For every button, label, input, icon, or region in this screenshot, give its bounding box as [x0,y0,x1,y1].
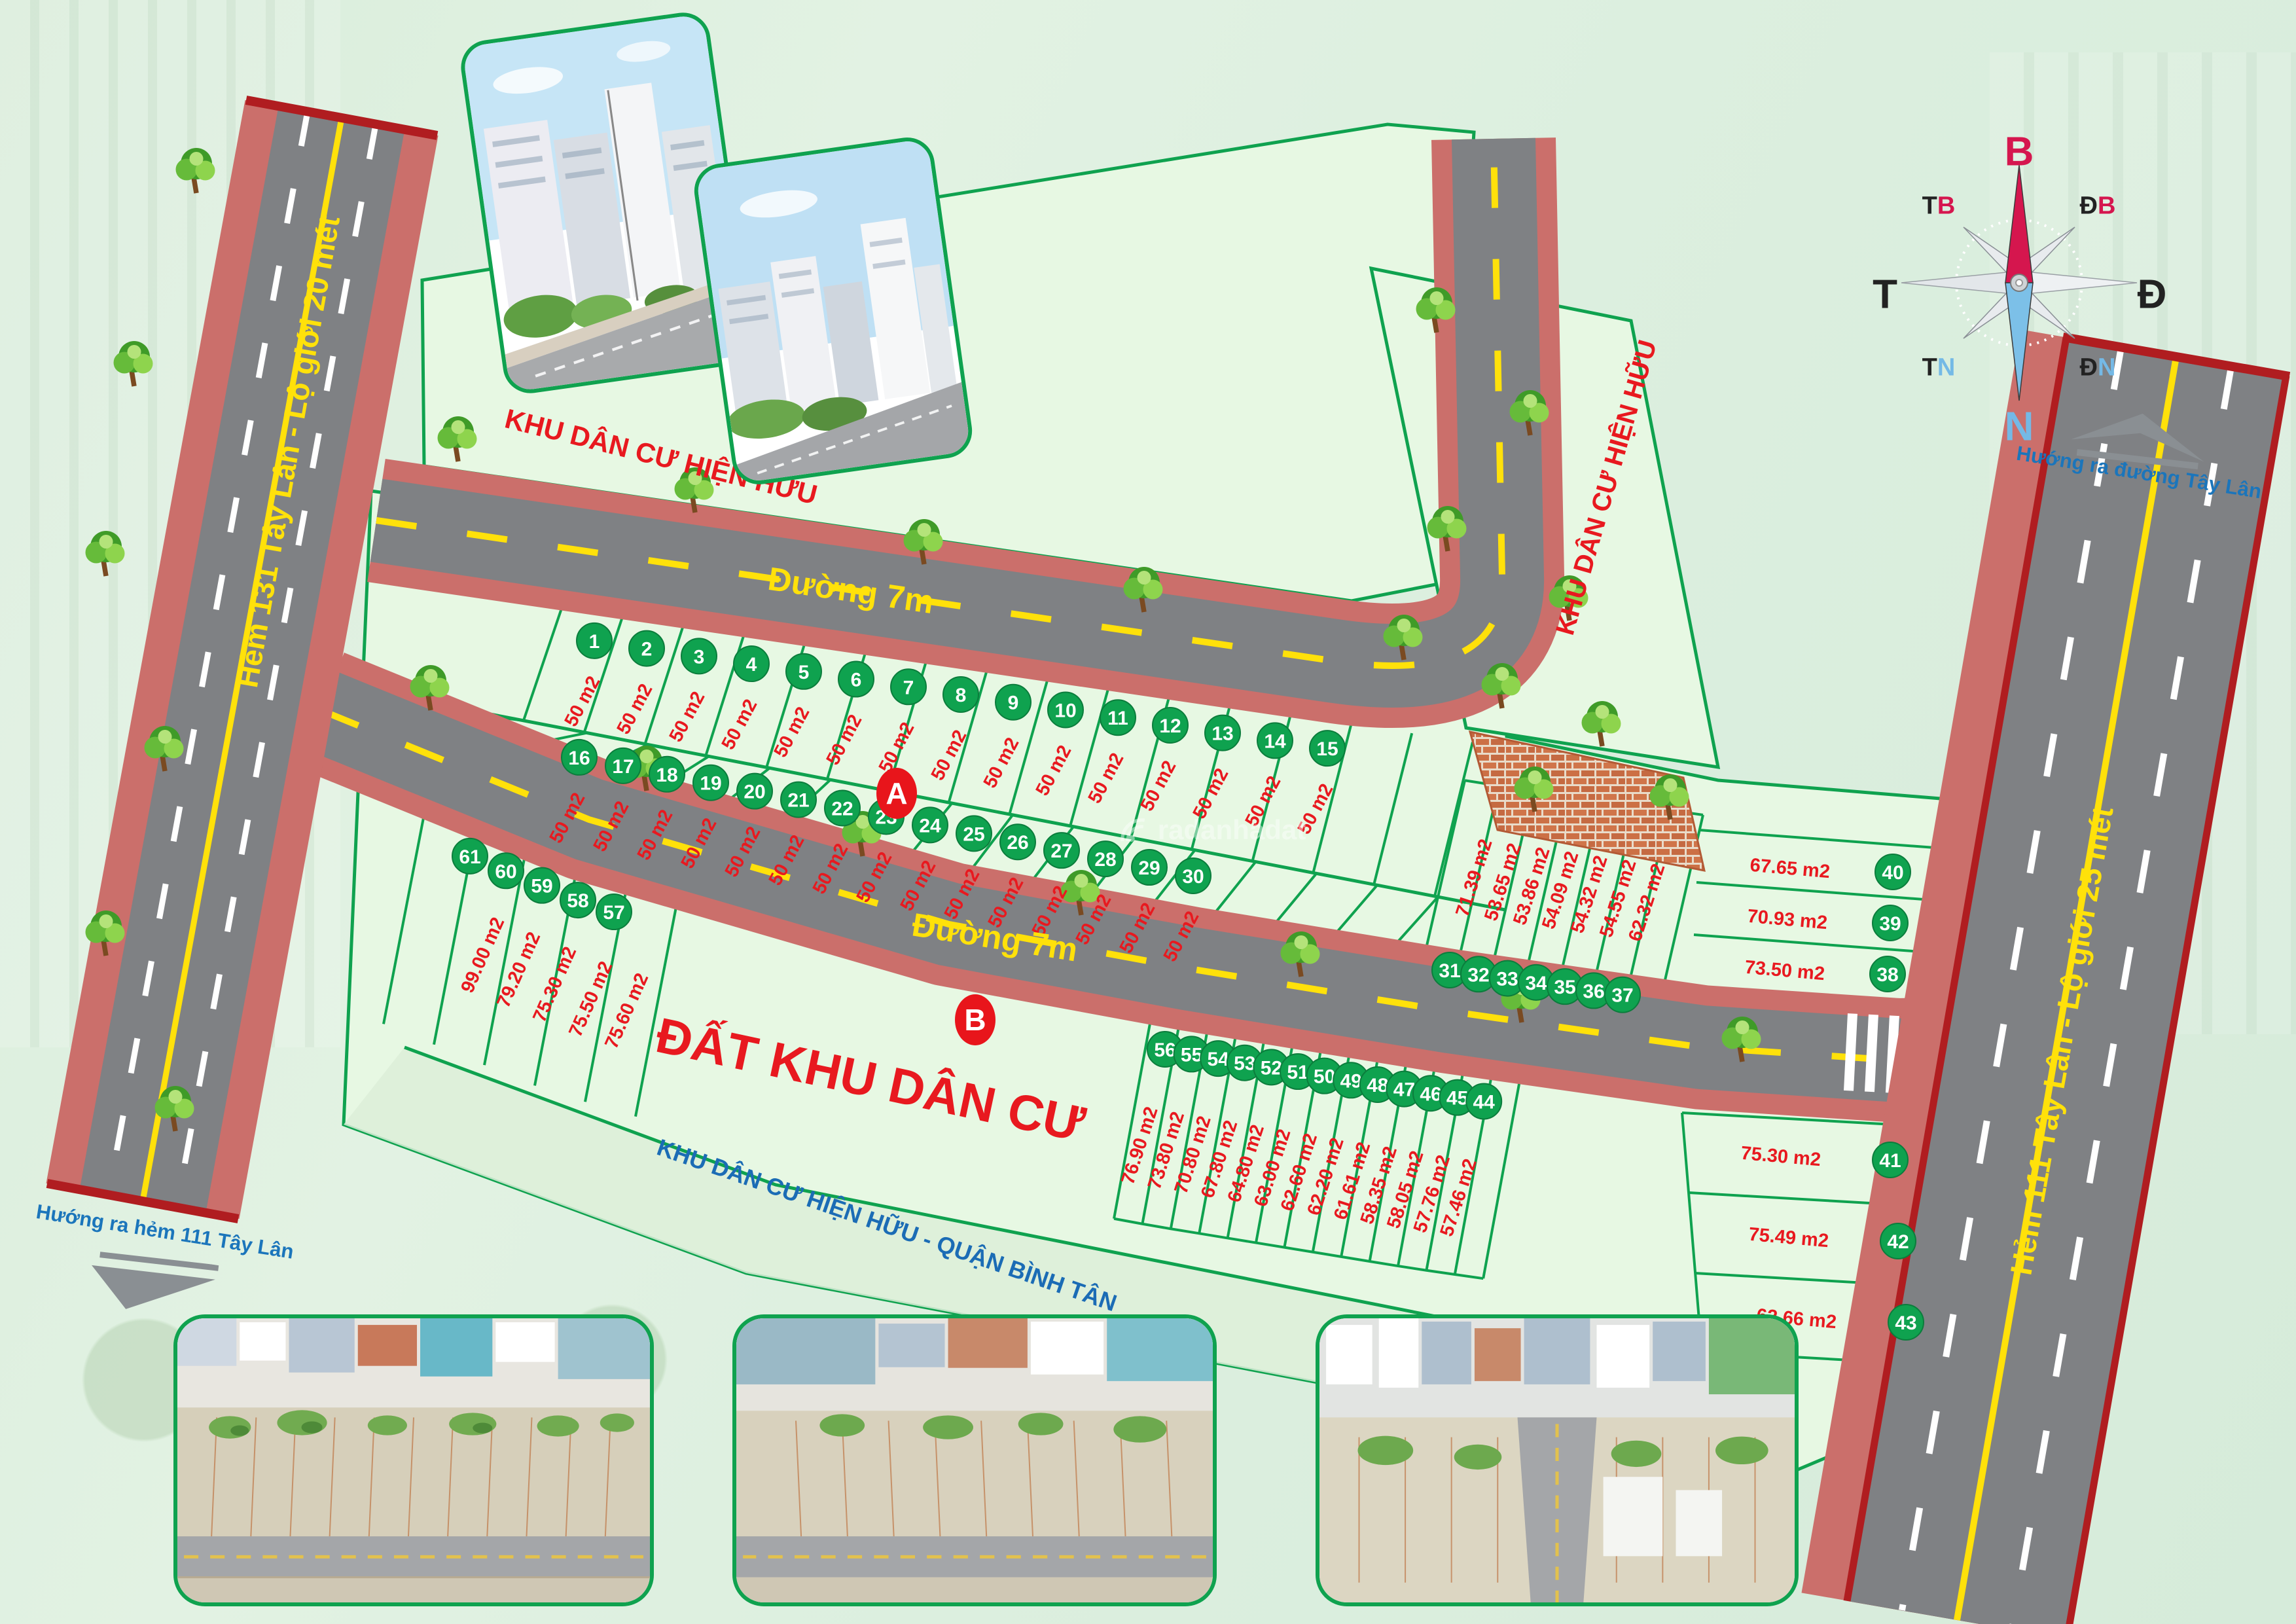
compass-ne-1: Đ [2080,192,2098,220]
compass-south: N [2005,404,2034,450]
photo-bottom-3 [1316,1314,1799,1606]
photo-aerial-scene [1319,1318,1795,1602]
marker-a: A [876,768,917,819]
compass-northwest: TB [1922,192,1956,221]
marker-b: B [955,994,996,1045]
plot-number: 61 [459,846,480,868]
tree-icon [86,531,125,576]
plot-number: 13 [1211,723,1233,745]
compass-ne-2: B [2098,192,2115,220]
plot-number: 59 [531,876,552,897]
compass-nw-1: T [1922,192,1937,220]
plot-number: 34 [1525,973,1547,994]
plot-number: 51 [1287,1062,1308,1083]
tree-icon [176,148,215,193]
compass-sw-2: N [1937,354,1955,382]
plot-number: 31 [1439,960,1460,982]
plot-number: 50 [1314,1066,1335,1088]
photo-aerial-scene [177,1318,650,1602]
plot-number: 32 [1467,964,1489,986]
plot-number: 54 [1208,1049,1230,1070]
plot-number: 36 [1583,981,1604,1002]
plot-number: 41 [1879,1150,1901,1172]
plot-number: 33 [1496,969,1518,990]
compass-north: B [2005,129,2034,175]
plot-number: 1 [589,631,600,653]
plot-number: 48 [1367,1075,1388,1096]
plot-number: 28 [1094,849,1116,871]
plot-number: 55 [1181,1044,1202,1066]
plot-number: 42 [1887,1231,1909,1253]
plot-number: 39 [1879,913,1901,935]
plot-number: 18 [656,765,677,786]
compass-se-2: N [2098,354,2115,382]
plot-number: 20 [744,782,765,803]
plot-number: 29 [1138,857,1160,879]
plot-number: 25 [963,823,984,845]
compass-se-1: Đ [2080,354,2098,382]
plot-number: 47 [1393,1079,1415,1101]
plot-number: 40 [1882,862,1903,884]
compass-sw-1: T [1922,354,1937,382]
photo-bottom-2 [732,1314,1217,1606]
plot-number: 27 [1050,840,1072,862]
photo-bottom-1 [173,1314,654,1606]
plot-number: 10 [1054,700,1076,721]
plot-number: 56 [1154,1039,1175,1061]
plot-number: 21 [787,790,809,812]
compass-northeast: ĐB [2080,192,2116,221]
plot-number: 38 [1876,964,1898,986]
plot-number: 43 [1895,1312,1916,1334]
plot-number: 52 [1261,1057,1282,1079]
plot-number: 35 [1554,977,1575,998]
compass-west: T [1873,272,1897,318]
plot-number: 4 [746,654,757,676]
photo-top-2 [691,134,975,488]
plot-number: 45 [1446,1088,1468,1110]
compass-southwest: TN [1922,354,1956,382]
plot-number: 11 [1107,708,1128,729]
plot-number: 44 [1473,1091,1496,1113]
plot-number: 6 [851,670,862,691]
photo-aerial-scene [736,1318,1213,1602]
plot-number: 15 [1316,738,1338,760]
plot-number: 19 [700,773,721,795]
plot-number: 26 [1007,832,1028,854]
plot-number: 17 [612,756,634,778]
plot-number: 53 [1234,1053,1255,1075]
plot-number: 30 [1182,866,1204,888]
plot-number: 9 [1008,693,1019,714]
plot-number: 24 [919,815,941,837]
plot-number: 46 [1420,1083,1441,1105]
watermark-logo-icon [1116,812,1151,848]
plot-number: 60 [495,861,516,882]
plot-number: 5 [798,662,810,683]
tree-icon [114,341,153,386]
plot-number: 14 [1264,731,1286,752]
compass-southeast: ĐN [2080,354,2116,382]
plot-number: 57 [603,902,624,924]
compass-nw-2: B [1937,192,1955,220]
plot-number: 58 [567,890,588,912]
plot-number: 3 [694,646,705,668]
land-plot-map: 150 m2250 m2350 m2450 m2550 m2650 m2750 … [0,0,2296,1624]
plot-number: 16 [568,748,590,769]
plot-number: 37 [1611,985,1633,1007]
plot-number: 8 [956,685,967,706]
plot-number: 12 [1159,715,1181,737]
plot-number: 22 [831,799,853,820]
compass-east: Đ [2138,272,2167,318]
watermark: radanhadat [1116,812,1306,848]
watermark-text: radanhadat [1158,814,1306,846]
plot-number: 7 [903,677,914,698]
photo-street-scene [695,138,971,483]
plot-number: 2 [641,639,653,660]
plot-number: 49 [1340,1070,1362,1092]
